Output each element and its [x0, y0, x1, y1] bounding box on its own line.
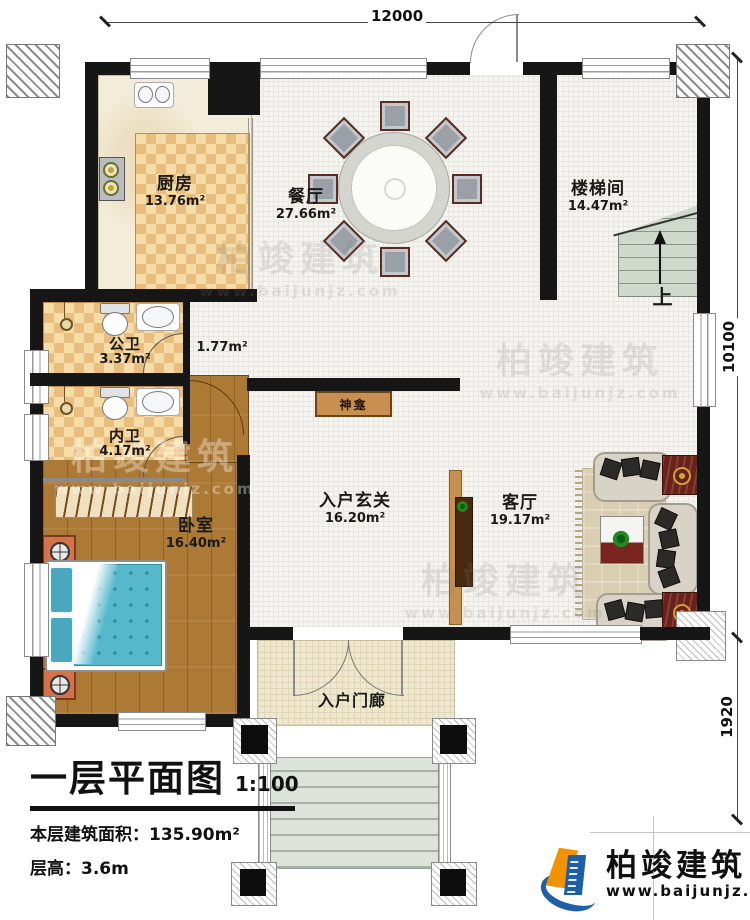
wall [247, 378, 460, 391]
room-label-dining: 餐厅 27.66m² [246, 188, 366, 222]
window [118, 712, 206, 731]
corner-column [6, 44, 60, 98]
room-label-stairwell: 楼梯间 14.47m² [538, 180, 658, 214]
sofa-cushion [625, 602, 646, 623]
window [582, 58, 670, 79]
kitchen-sink-icon [138, 86, 153, 103]
floor-height-line: 层高：3.6m [30, 854, 299, 879]
plant-icon [611, 529, 631, 549]
wall [237, 455, 250, 727]
kitchen-sink-icon [155, 86, 170, 103]
bed-sheet [74, 564, 118, 664]
sofa-cushion [621, 457, 641, 477]
column-core [440, 869, 466, 896]
side-table [662, 455, 700, 495]
sofa-cushion [658, 528, 679, 549]
room-label-bedroom: 卧室 16.40m² [136, 517, 256, 551]
lamp-cord [64, 386, 65, 402]
bath-bedroom-line [43, 478, 185, 482]
lamp-pull-icon [60, 402, 73, 415]
plan-title: 一层平面图 [30, 748, 225, 802]
company-logo-icon [540, 845, 598, 905]
room-label-corridor: 1.77m² [192, 341, 252, 356]
wall [30, 289, 257, 302]
bath-sink-icon [142, 306, 174, 328]
rug-fringe [575, 470, 582, 616]
bath-sink-icon [142, 391, 174, 413]
wall [425, 62, 470, 75]
wall [250, 627, 293, 640]
company-url: www.baijunjz.com [606, 882, 750, 900]
room-label-living: 客厅 19.17m² [460, 494, 580, 528]
room-label-private-bath: 内卫 4.17m² [65, 428, 185, 460]
corner-column [6, 696, 56, 746]
stairs-up-label: 上 [648, 286, 678, 309]
title-block: 一层平面图 1:100 本层建筑面积：135.90m² 层高：3.6m [30, 748, 299, 879]
wall [30, 373, 190, 386]
window [130, 58, 210, 79]
room-label-public-bath: 公卫 3.37m² [65, 336, 185, 368]
room-label-kitchen: 厨房 13.76m² [115, 175, 235, 209]
entry-door-leaf [293, 640, 295, 695]
window [693, 313, 716, 407]
dimension-top-value: 12000 [368, 7, 426, 25]
bed-pillow [49, 566, 74, 614]
dining-chair [452, 174, 482, 204]
wall [640, 627, 710, 640]
shrine-shelf: 神龛 [315, 391, 392, 417]
dining-chair [380, 247, 410, 277]
company-name: 柏竣建筑 [606, 850, 750, 883]
wall [403, 627, 510, 640]
wall [85, 62, 98, 302]
floor-area-line: 本层建筑面积：135.90m² [30, 820, 299, 845]
title-underline [30, 806, 295, 811]
lamp-pull-icon [60, 318, 73, 331]
company-logo: 柏竣建筑 www.baijunjz.com [540, 845, 750, 905]
plan-scale: 1:100 [235, 772, 299, 796]
window [24, 563, 49, 657]
dining-chair [380, 101, 410, 131]
window [510, 625, 642, 644]
room-label-foyer: 入户玄关 16.20m² [295, 492, 415, 526]
wardrobe [55, 486, 193, 518]
window [24, 414, 49, 461]
sofa-cushion [644, 599, 664, 619]
dimension-line-right [737, 58, 738, 822]
window [260, 58, 427, 79]
wall [208, 62, 260, 115]
toilet-icon [102, 396, 128, 420]
floor-plan-sheet: 神龛 [0, 0, 750, 920]
column-core [440, 725, 467, 754]
sofa-cushion [639, 459, 660, 480]
lamp-cord [64, 302, 65, 318]
shrine-label: 神龛 [339, 396, 367, 413]
dimension-right-upper-value: 10100 [720, 318, 738, 376]
dining-table-center [384, 178, 406, 200]
stair-up-arrow [659, 236, 661, 284]
sheet-line [590, 832, 750, 833]
toilet-icon [102, 312, 128, 336]
wall [523, 62, 582, 75]
corner-column [676, 44, 730, 98]
room-label-porch: 入户门廊 [292, 692, 412, 710]
bed-pillow [49, 616, 74, 664]
dimension-right-lower-value: 1920 [718, 693, 736, 741]
kitchen-floor [135, 133, 250, 291]
entry-door-leaf [401, 640, 403, 695]
